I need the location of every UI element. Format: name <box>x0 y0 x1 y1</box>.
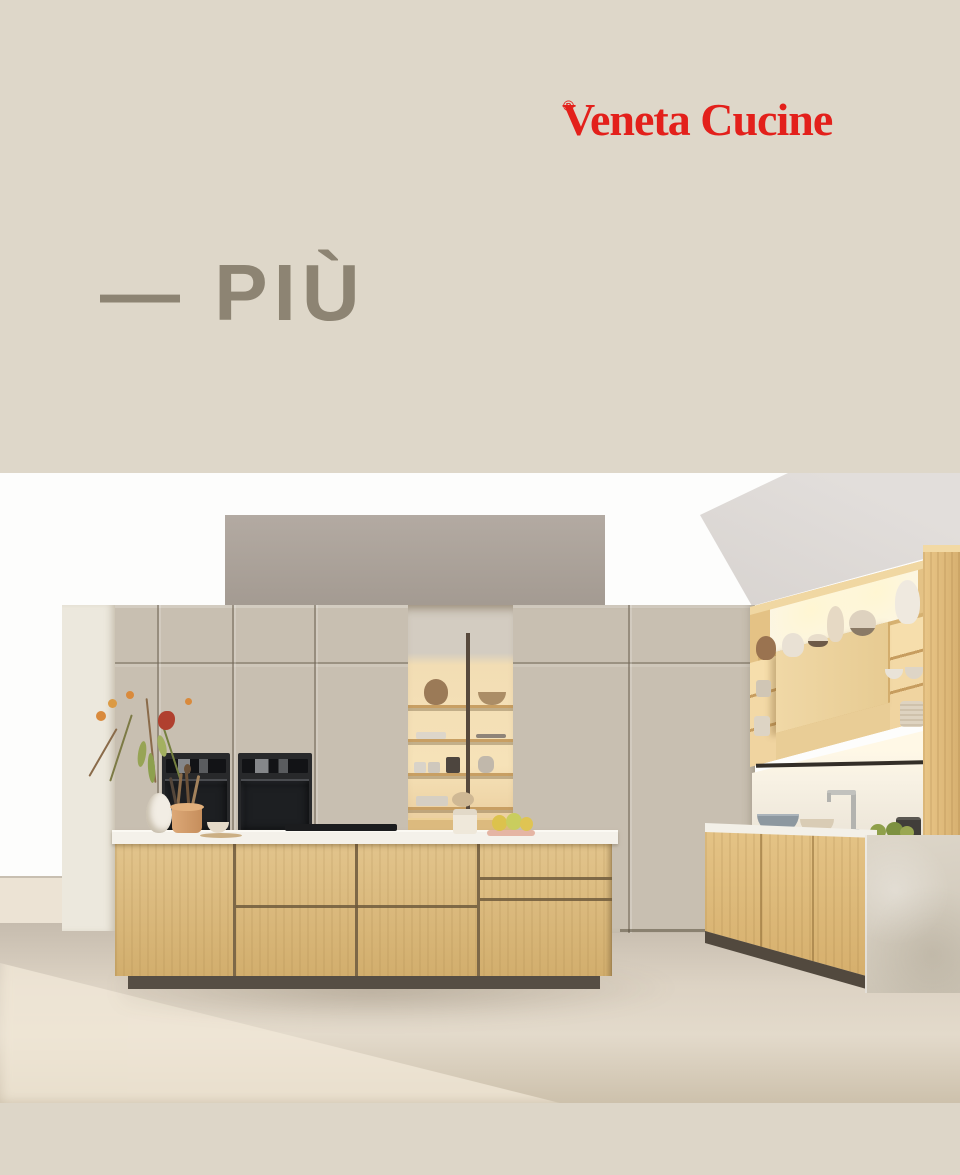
gray-wall-panel <box>225 515 605 615</box>
cabinet-end-panel <box>62 605 115 931</box>
drawer-gap <box>480 877 612 880</box>
faucet <box>851 791 856 832</box>
header-band: — PIÙ SPAZIO PIÙ LIBERI Veneta Cucine® <box>0 0 960 473</box>
niche-plate-stack <box>416 732 446 739</box>
pink-tray <box>487 830 535 836</box>
catalog-cover: — PIÙ SPAZIO PIÙ LIBERI Veneta Cucine® <box>0 0 960 1175</box>
island-plinth <box>128 976 600 989</box>
baseboard-line <box>0 876 62 878</box>
shelf-white-jug <box>895 580 920 624</box>
white-vase <box>146 793 172 833</box>
drawer-gap <box>236 905 477 908</box>
drawer-gap <box>480 898 612 901</box>
niche-dark-mug <box>446 757 460 773</box>
stone-end-panel <box>865 835 960 993</box>
orange-blossom <box>96 711 106 721</box>
oven-control-panel <box>242 759 308 773</box>
niche-dish <box>476 734 506 738</box>
niche-plates <box>416 796 448 806</box>
wall-unit-left-column <box>750 656 776 767</box>
built-in-oven-right <box>238 753 312 833</box>
niche-cup <box>428 762 440 773</box>
shelf-striped-bowl <box>808 634 828 647</box>
orange-blossom <box>108 699 117 708</box>
niche-vase <box>424 679 448 705</box>
niche-cup <box>414 762 426 773</box>
shelf-support-pole <box>466 633 470 818</box>
niche-small-vase <box>478 756 494 773</box>
shelf-vase-terracotta <box>756 636 776 660</box>
shelf-pedestal-bowl <box>782 633 804 657</box>
floor-sunlit-patch <box>0 877 62 923</box>
shelf-striped-jar <box>900 701 924 727</box>
spoon-head <box>184 764 191 774</box>
wooden-plate <box>200 833 242 838</box>
kitchen-photo <box>0 473 960 1103</box>
pear-fruit <box>520 817 533 831</box>
shelf-jar <box>754 716 770 736</box>
induction-cooktop <box>285 824 397 831</box>
wall-unit-side-panel-top <box>923 545 960 552</box>
brand-logo: Veneta Cucine® <box>562 93 902 146</box>
oak-island-base <box>115 844 612 976</box>
shelf-jar <box>756 680 771 697</box>
orange-blossom <box>126 691 134 699</box>
pear-fruit <box>492 815 507 831</box>
headline-line-1: — PIÙ <box>100 244 700 341</box>
shelf-tall-vase <box>827 606 844 642</box>
shelf-round-vase <box>849 610 876 636</box>
island-side-shade <box>605 844 612 976</box>
wall-unit-side-panel <box>923 545 960 837</box>
cream-canister <box>453 809 477 834</box>
niche-jar <box>452 792 474 807</box>
faucet-tip <box>827 793 831 802</box>
terracotta-pot-rim <box>170 803 204 811</box>
registered-mark-icon: ® <box>563 98 573 115</box>
footer-band <box>0 1103 960 1175</box>
orange-blossom <box>185 698 192 705</box>
brand-name: Veneta Cucine <box>562 93 832 146</box>
faucet-spout <box>827 790 856 795</box>
